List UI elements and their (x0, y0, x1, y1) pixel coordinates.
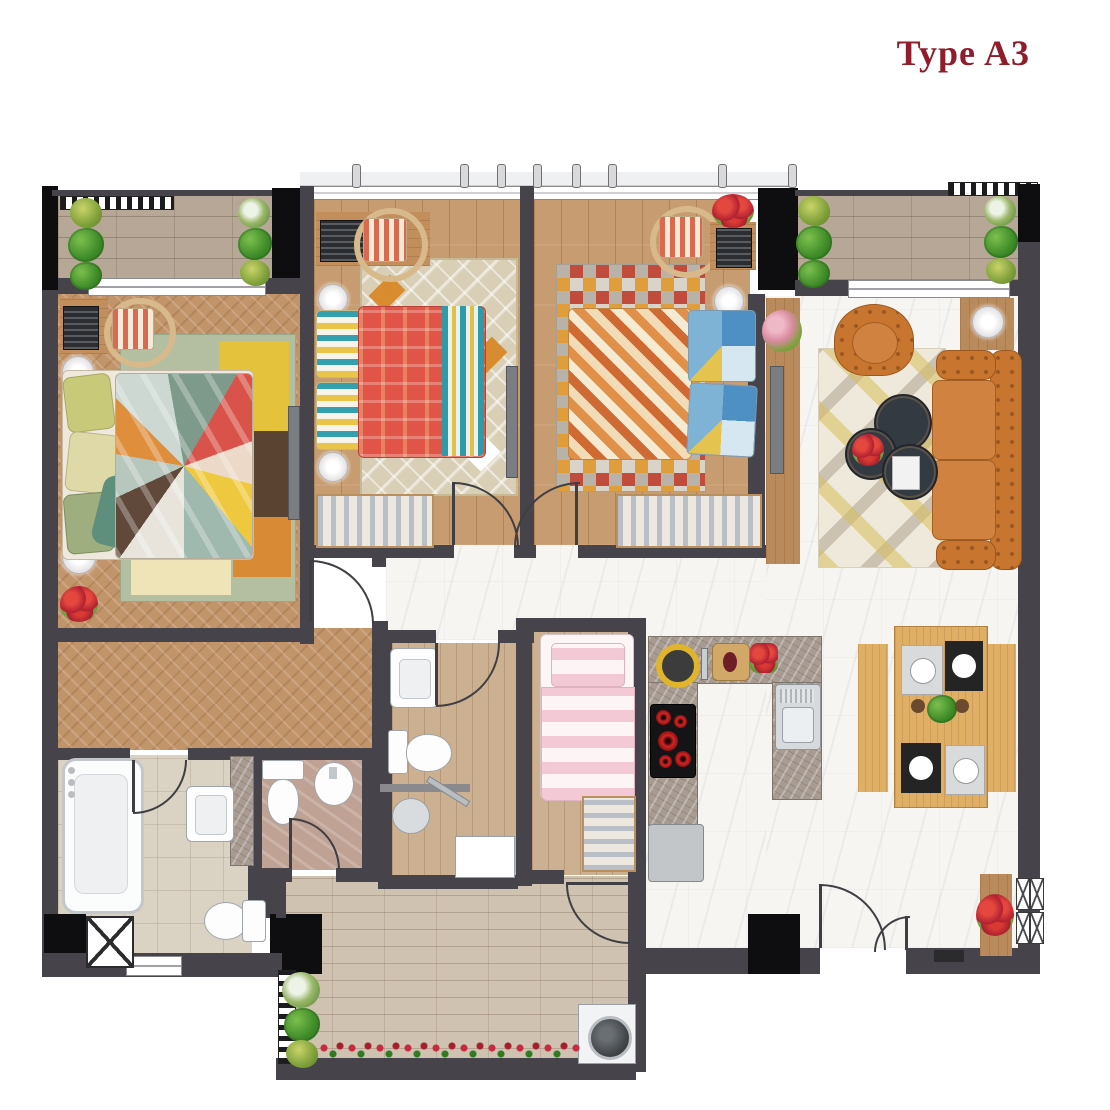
shelf-rack (582, 796, 636, 872)
placemat (901, 743, 941, 793)
laptop-icon (63, 306, 99, 350)
sofa-cushion (932, 460, 996, 540)
bathroom-window (126, 956, 182, 976)
refrigerator (648, 824, 704, 882)
washer-drum (588, 1016, 632, 1060)
sink-basin (195, 795, 227, 835)
tv-master (288, 406, 300, 520)
plant-icon (70, 198, 102, 228)
wall (516, 630, 532, 886)
faucet (68, 779, 75, 786)
wall (1018, 242, 1040, 956)
plate (953, 758, 979, 784)
faucet (68, 767, 75, 774)
door-leaf (566, 882, 628, 885)
wall-column (758, 188, 798, 290)
burner (675, 751, 691, 767)
maid-bed (540, 634, 634, 800)
entrance-door-leaf (819, 884, 822, 948)
closet-corridor-floor (56, 628, 374, 750)
flower-pot-icon (712, 194, 754, 228)
flower-pot-icon (60, 586, 98, 622)
toilet-tank (262, 760, 304, 780)
kitchen-sink (775, 684, 821, 750)
flower-pot-icon (976, 894, 1014, 936)
toilet-tank (242, 900, 266, 942)
bathroom-sink (186, 786, 234, 842)
wardrobe (316, 494, 434, 548)
toilet-bowl (406, 734, 452, 772)
chair-cushion (363, 218, 407, 262)
pillow (62, 372, 116, 433)
door-mat (934, 950, 964, 962)
balcony-2-window (848, 280, 1010, 298)
burner (656, 710, 671, 725)
table-lamp (972, 306, 1004, 338)
laptop-icon (716, 228, 752, 268)
pillow (551, 643, 625, 687)
bathroom-sink (390, 648, 438, 708)
sofa-arm (936, 350, 996, 380)
duvet-stripe-band (442, 306, 484, 456)
burner (659, 755, 672, 768)
cooking-pot-icon (656, 644, 700, 688)
chair-cushion (112, 308, 154, 350)
entrance-door-leaf (905, 916, 908, 950)
door-swing-arc (310, 560, 374, 624)
wall-column (42, 186, 58, 290)
mullion-tick (352, 164, 361, 188)
wall (372, 545, 386, 567)
centerpiece-plant-icon (927, 695, 957, 723)
mullion-tick (533, 164, 542, 188)
plant-icon (282, 972, 320, 1008)
magazines (892, 456, 920, 490)
duvet (115, 373, 253, 559)
door-leaf (132, 760, 135, 812)
shower-tray (455, 836, 515, 878)
wall (276, 878, 286, 918)
faucet (68, 791, 75, 798)
washing-machine (578, 1004, 636, 1064)
wall (516, 870, 564, 884)
wall (188, 748, 390, 760)
bedside-lamp (318, 452, 348, 482)
facade-ledge (300, 172, 790, 186)
door-leaf (435, 643, 438, 705)
wall (42, 628, 304, 642)
placemat (901, 645, 943, 695)
wall (516, 618, 646, 632)
master-bed (62, 370, 254, 560)
flower-bed (318, 1040, 580, 1064)
tomatoes-icon (750, 643, 778, 673)
wall-shaft-block (1016, 878, 1030, 910)
door-leaf (289, 818, 292, 868)
mullion-tick (572, 164, 581, 188)
wall-shaft-block (1016, 912, 1030, 944)
tv-bedroom-2 (506, 366, 518, 478)
wall-shaft-block (1030, 878, 1044, 910)
plate (952, 654, 976, 678)
placemat (945, 745, 985, 795)
toilet-tank (388, 730, 408, 774)
sofa-arm (936, 540, 996, 570)
tv-living (770, 366, 784, 474)
bowl (911, 699, 925, 713)
bed-2 (316, 306, 484, 456)
cooktop (650, 704, 696, 778)
wardrobe (616, 494, 762, 548)
flower-bowl-icon (852, 434, 884, 466)
mullion-tick (608, 164, 617, 188)
flower-vase-icon (762, 310, 802, 352)
knife-icon (701, 648, 708, 680)
mullion-tick (460, 164, 469, 188)
wall (906, 948, 1040, 974)
door-leaf (575, 482, 578, 545)
shower-partition (380, 784, 470, 792)
wall-column (748, 914, 800, 974)
plant-icon (238, 198, 270, 228)
pillow (688, 310, 756, 382)
door-leaf (309, 560, 312, 622)
burner (674, 715, 687, 728)
bowl (955, 699, 969, 713)
plant-icon (984, 196, 1016, 226)
drainboard (780, 689, 814, 703)
wall-shaft-block (1030, 912, 1044, 944)
balcony-1-window (88, 278, 266, 296)
plan-title: Type A3 (860, 32, 1030, 82)
food-item (723, 652, 737, 672)
wall-column (1018, 184, 1040, 244)
wall (378, 630, 436, 643)
burner (658, 731, 678, 751)
mullion-tick (497, 164, 506, 188)
pillow (686, 382, 758, 457)
sink-basin (399, 659, 431, 699)
bathtub-basin (74, 774, 128, 894)
bed-3 (568, 308, 758, 458)
duvet (568, 308, 692, 460)
floor-plan: Type A3 (0, 0, 1110, 1110)
pillow (316, 382, 362, 450)
sink-bowl (782, 707, 814, 743)
dining-table (894, 626, 988, 808)
plate (910, 658, 936, 684)
dining-bench (986, 644, 1016, 792)
armchair-cushion (852, 322, 898, 364)
plant-icon (240, 260, 270, 286)
plant-icon (798, 196, 830, 226)
elevator-shaft (86, 916, 134, 968)
pillow (316, 310, 362, 378)
wall (42, 186, 58, 976)
faucet (329, 767, 337, 779)
shower-drain (392, 798, 430, 834)
duvet (541, 687, 635, 801)
mullion-tick (718, 164, 727, 188)
cutting-board-icon (712, 643, 750, 681)
bidet-sink (314, 762, 354, 806)
chair-cushion (659, 216, 703, 258)
mullion-tick (788, 164, 797, 188)
plant-icon (286, 1040, 318, 1068)
sofa-cushion (932, 380, 996, 460)
dining-bench (858, 644, 888, 792)
placemat (945, 641, 983, 691)
plant-icon (986, 258, 1016, 284)
plate (909, 756, 933, 780)
door-leaf (452, 482, 455, 545)
